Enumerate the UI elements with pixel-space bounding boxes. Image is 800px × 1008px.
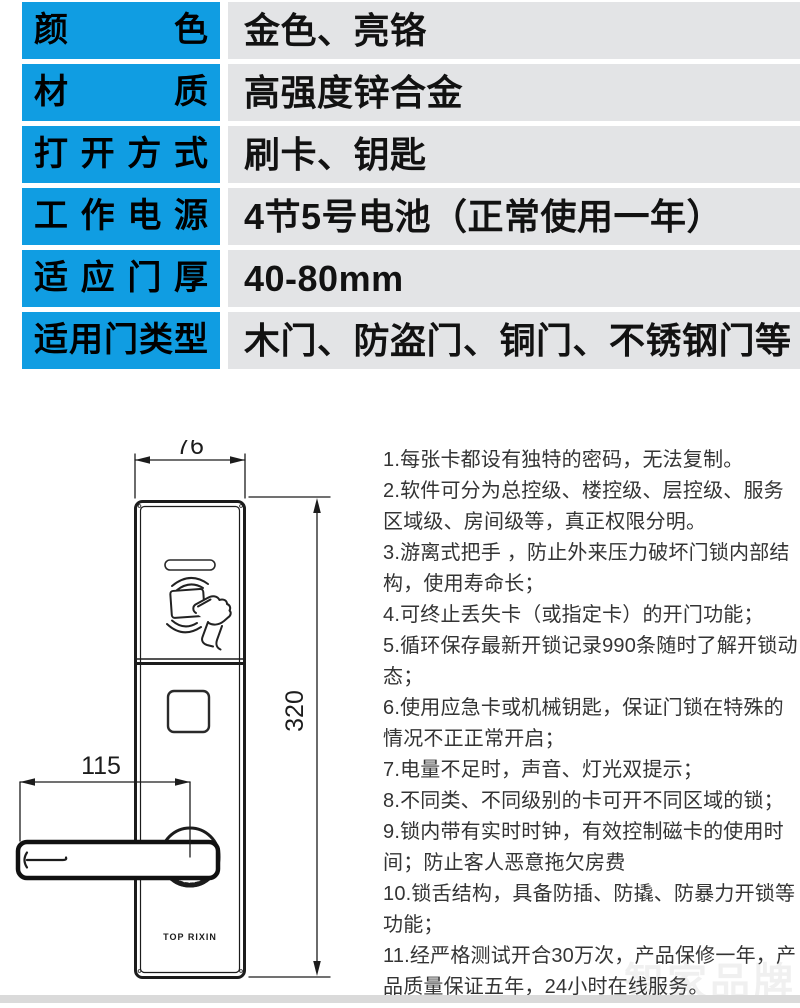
spec-value-material: 高强度锌合金 — [228, 64, 800, 121]
handle-dim-label: 115 — [81, 752, 121, 780]
feature-item: 8.不同类、不同级别的卡可开不同区域的锁； — [383, 786, 800, 817]
spec-row: 材质 高强度锌合金 — [22, 64, 800, 121]
feature-item: 4.可终止丢失卡（或指定卡）的开门功能； — [383, 600, 800, 631]
spec-label-power: 工作电源 — [22, 188, 220, 245]
spec-row: 适用门类型 木门、防盗门、铜门、不锈钢门等 — [22, 312, 800, 369]
spec-label-color: 颜色 — [22, 2, 220, 59]
bottom-strip — [0, 995, 800, 1003]
spec-value-open-method: 刷卡、钥匙 — [228, 126, 800, 183]
width-dim-label: 76 — [176, 440, 204, 460]
product-spec-page: 颜色 金色、亮铬 材质 高强度锌合金 打开方式 刷卡、钥匙 工作电源 4节5号电… — [0, 0, 800, 1003]
feature-item: 2.软件可分为总控级、楼控级、层控级、服务区域级、房间级等，真正权限分明。 — [383, 476, 800, 538]
feature-item: 7.电量不足时，声音、灯光双提示； — [383, 755, 800, 786]
spec-label-door-type: 适用门类型 — [22, 312, 220, 369]
spec-table: 颜色 金色、亮铬 材质 高强度锌合金 打开方式 刷卡、钥匙 工作电源 4节5号电… — [22, 2, 800, 369]
spec-label-material: 材质 — [22, 64, 220, 121]
spec-row: 颜色 金色、亮铬 — [22, 2, 800, 59]
feature-item: 3.游离式把手 ，防止外来压力破坏门锁内部结构，使用寿命长； — [383, 538, 800, 600]
spec-label-door-thickness: 适应门厚 — [22, 250, 220, 307]
spec-value-power: 4节5号电池（正常使用一年） — [228, 188, 800, 245]
handle — [18, 842, 218, 878]
feature-item: 5.循环保存最新开锁记录990条随时了解开锁动态； — [383, 631, 800, 693]
feature-item: 9.锁内带有实时时钟，有效控制磁卡的使用时间；防止客人恶意拖欠房费 — [383, 817, 800, 879]
lock-body — [136, 502, 245, 978]
feature-item: 6.使用应急卡或机械钥匙，保证门锁在特殊的情况不正正常开启； — [383, 693, 800, 755]
spec-value-color: 金色、亮铬 — [228, 2, 800, 59]
height-dim-label: 320 — [281, 690, 309, 732]
spec-row: 打开方式 刷卡、钥匙 — [22, 126, 800, 183]
width-dimension — [135, 454, 245, 498]
spec-label-open-method: 打开方式 — [22, 126, 220, 183]
feature-item: 1.每张卡都设有独特的密码，无法复制。 — [383, 445, 800, 476]
height-dimension — [249, 497, 330, 977]
feature-list: 1.每张卡都设有独特的密码，无法复制。 2.软件可分为总控级、楼控级、层控级、服… — [383, 445, 800, 1003]
feature-item: 10.锁舌结构，具备防插、防撬、防暴力开锁等功能； — [383, 879, 800, 941]
spec-value-door-thickness: 40-80mm — [228, 250, 800, 307]
spec-value-door-type: 木门、防盗门、铜门、不锈钢门等 — [228, 312, 800, 369]
spec-row: 工作电源 4节5号电池（正常使用一年） — [22, 188, 800, 245]
lock-technical-drawing: 76 320 — [0, 440, 380, 1003]
brand-text: TOP RIXIN — [163, 932, 217, 942]
spec-row: 适应门厚 40-80mm — [22, 250, 800, 307]
